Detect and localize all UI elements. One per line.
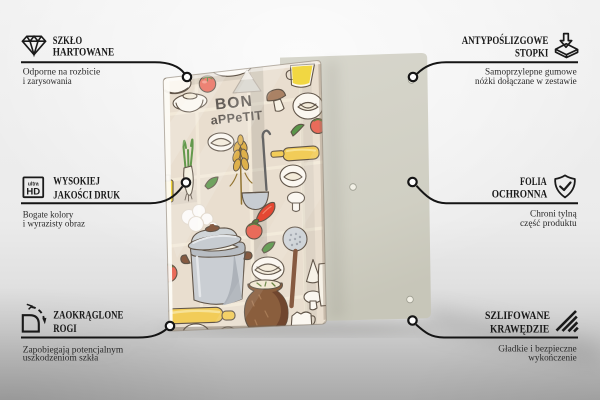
svg-text:i wyrazisty obraz: i wyrazisty obraz [23, 219, 86, 230]
svg-text:uszkodzeniom szkła: uszkodzeniom szkła [23, 353, 99, 364]
svg-text:wykończenie: wykończenie [528, 353, 577, 364]
svg-text:ZAOKRĄGLONE: ZAOKRĄGLONE [53, 310, 123, 322]
svg-text:i zarysowania: i zarysowania [23, 76, 73, 87]
svg-text:ANTYPOŚLIZGOWE: ANTYPOŚLIZGOWE [462, 35, 549, 47]
svg-text:STOPKI: STOPKI [515, 47, 548, 59]
svg-text:SZKŁO: SZKŁO [53, 35, 83, 47]
svg-text:HARTOWANE: HARTOWANE [53, 47, 114, 59]
svg-text:część produktu: część produktu [520, 218, 577, 229]
svg-text:KRAWĘDZIE: KRAWĘDZIE [490, 323, 549, 335]
svg-text:ROGI: ROGI [53, 323, 76, 335]
svg-text:FOLIA: FOLIA [520, 176, 547, 188]
svg-text:JAKOŚCI DRUK: JAKOŚCI DRUK [53, 189, 120, 201]
svg-text:HD: HD [26, 187, 40, 198]
svg-text:SZLIFOWANE: SZLIFOWANE [485, 310, 550, 322]
svg-text:nóżki dołączane w zestawie: nóżki dołączane w zestawie [475, 76, 577, 87]
svg-text:OCHRONNA: OCHRONNA [492, 189, 548, 201]
svg-text:WYSOKIEJ: WYSOKIEJ [53, 176, 100, 188]
